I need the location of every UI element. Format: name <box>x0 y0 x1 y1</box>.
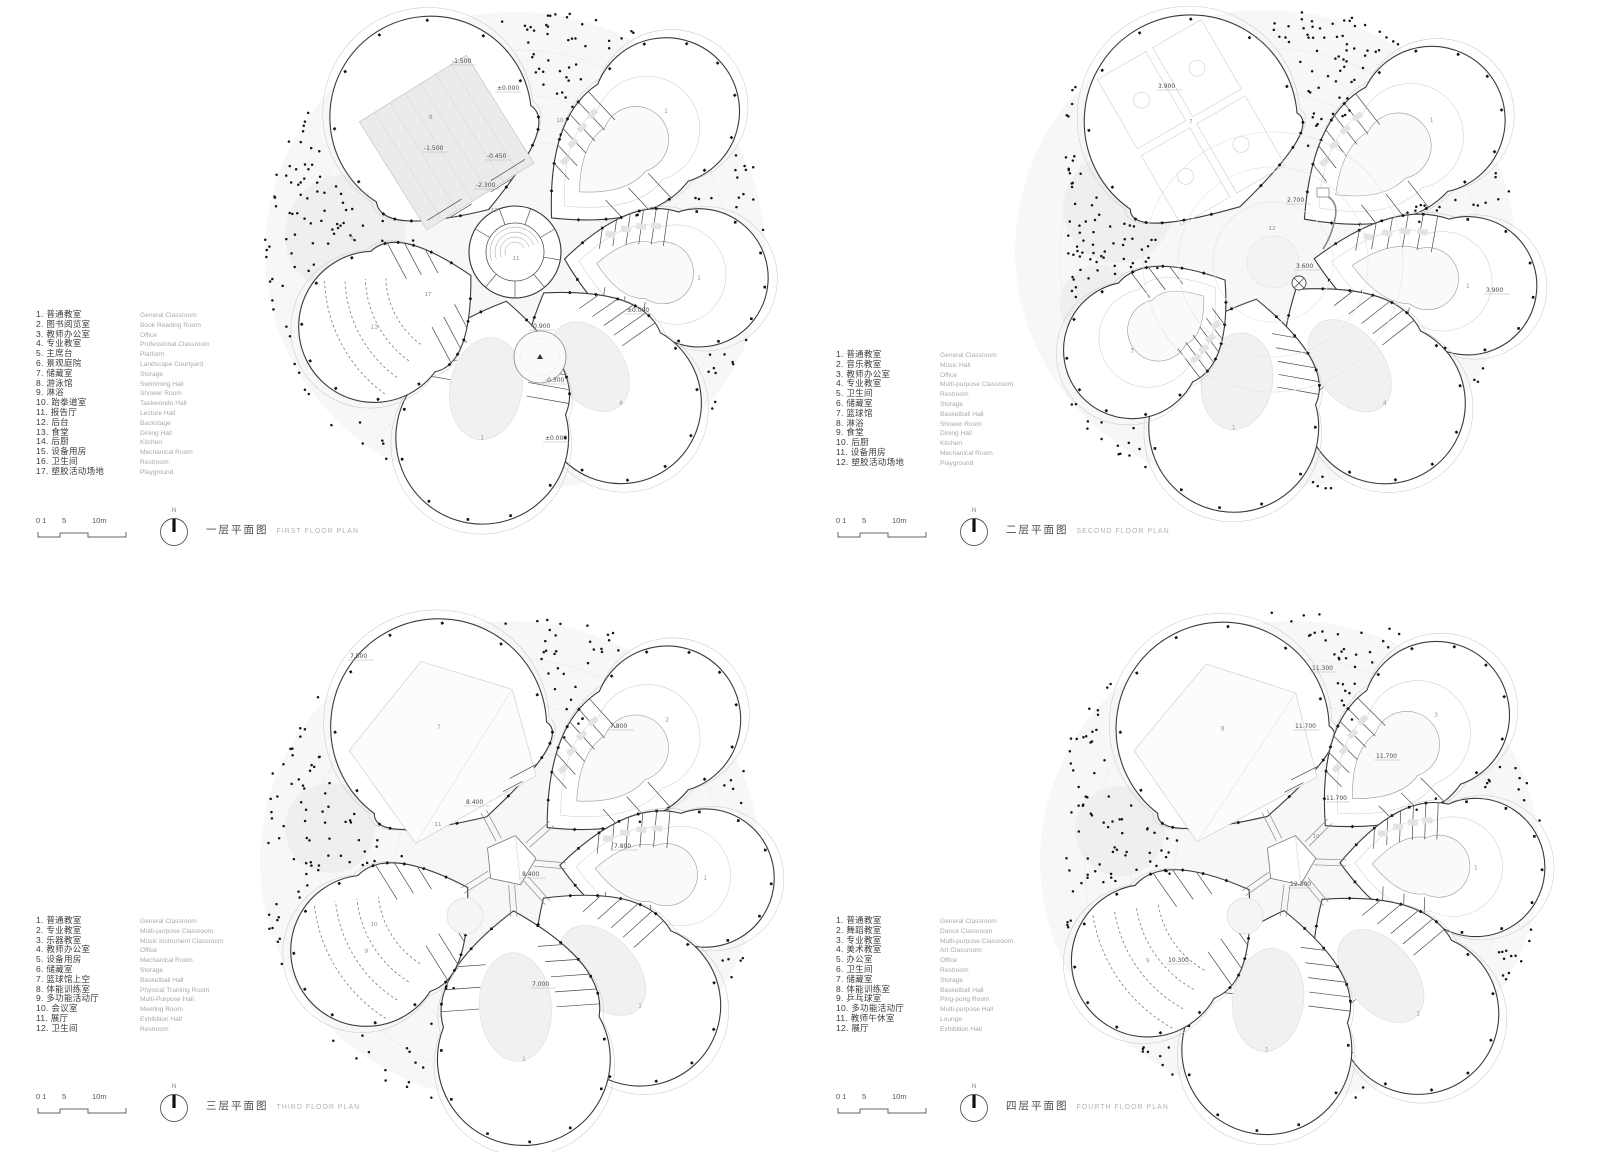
legend-item-en: Swimming Hall <box>140 380 184 390</box>
legend-item-en: Shower Room <box>140 389 182 399</box>
legend-item-zh: 12. 卫生间 <box>36 1024 140 1034</box>
svg-text:11.700: 11.700 <box>1295 723 1316 730</box>
scale-num: 0 1 <box>36 516 62 526</box>
footer-fourth-floor: 0 1 5 10m N 四层平面图 FOURTH FLOOR PLAN <box>836 1080 1169 1131</box>
legend-item: 7. 篮球馆Basketball Hall <box>836 409 1066 419</box>
legend-item-en: Multi-purpose Classroom <box>940 937 1013 947</box>
scale-numbers: 0 1 5 10m <box>36 1092 134 1102</box>
legend-item-en: Music Instrument Classroom <box>140 937 224 947</box>
legend-item-en: Dance Classroom <box>940 927 992 937</box>
legend-item-en: Mechanical Room <box>940 449 993 459</box>
svg-text:4: 4 <box>619 400 623 407</box>
legend-item: 12. 展厅Exhibition Hall <box>836 1024 1066 1034</box>
legend-item-en: Kitchen <box>940 439 962 449</box>
svg-text:4: 4 <box>1383 400 1387 407</box>
svg-text:8.400: 8.400 <box>522 871 539 878</box>
scale-numbers: 0 1 5 10m <box>36 516 134 526</box>
svg-text:1: 1 <box>703 875 707 882</box>
legend-item-en: General Classroom <box>140 917 197 927</box>
plan-title-en: THIRD FLOOR PLAN <box>277 1104 361 1111</box>
legend-item-en: Basketball Hall <box>940 986 984 996</box>
footer-third-floor: 0 1 5 10m N 三层平面图 THIRD FLOOR PLAN <box>36 1080 360 1131</box>
legend-item: 13. 食堂Dining Hall <box>36 428 266 438</box>
svg-text:N: N <box>972 506 977 514</box>
svg-text:1: 1 <box>480 435 484 442</box>
plan-title-en: FOURTH FLOOR PLAN <box>1077 1104 1169 1111</box>
legend-item-en: Multi-purpose Classroom <box>140 927 213 937</box>
legend-item-en: Mechanical Room <box>140 956 193 966</box>
svg-text:3: 3 <box>1434 712 1438 719</box>
legend-item: 11. 教师午休室Lounge <box>836 1014 1066 1024</box>
scale-bar: 0 1 5 10m <box>836 516 934 544</box>
legend-item-en: Multi-purpose Hall <box>940 1005 993 1015</box>
legend-first-floor: 1. 普通教室General Classroom2. 图书阅览室Book Rea… <box>36 310 266 477</box>
legend-item-en: Restroom <box>940 966 969 976</box>
legend-item-en: Platform <box>140 350 165 360</box>
svg-text:1: 1 <box>1265 1047 1269 1054</box>
legend-item-en: Lecture Hall <box>140 409 175 419</box>
north-arrow-icon: N <box>156 1080 192 1131</box>
plan-title-zh: 二层平面图 <box>1006 522 1069 537</box>
legend-item: 8. 淋浴Shower Room <box>836 419 1066 429</box>
legend-item-en: Mechanical Room <box>140 448 193 458</box>
svg-text:1: 1 <box>664 108 668 115</box>
svg-text:11.700: 11.700 <box>1376 753 1397 760</box>
legend-item-en: Dining Hall <box>140 429 172 439</box>
legend-item-en: Storage <box>940 400 963 410</box>
svg-text:11.300: 11.300 <box>1312 665 1333 672</box>
svg-text:8.400: 8.400 <box>466 799 483 806</box>
floor-plan-drawing-second: 3.9002.7003.6003.90012711413 <box>800 0 1600 576</box>
legend-item-zh: 12. 展厅 <box>836 1024 940 1034</box>
legend-item-en: General Classroom <box>940 351 997 361</box>
legend-item-en: Playground <box>940 459 973 469</box>
legend-item-en: Professional Classroom <box>140 340 210 350</box>
panel-fourth-floor: 11.30011.70011.70011.70012.30010.3001083… <box>800 576 1600 1152</box>
legend-item-en: Office <box>140 331 157 341</box>
svg-text:N: N <box>972 1082 977 1090</box>
floor-plan-drawing-fourth: 11.30011.70011.70011.70012.30010.3001083… <box>800 576 1600 1152</box>
legend-item: 10. 会议室Meeting Room <box>36 1004 266 1014</box>
svg-text:7: 7 <box>1189 118 1193 125</box>
legend-item: 12. 后台Backstage <box>36 418 266 428</box>
scale-num: 5 <box>62 516 92 526</box>
scale-num: 10m <box>92 1092 122 1102</box>
svg-text:-2.300: -2.300 <box>476 182 496 189</box>
svg-text:17: 17 <box>425 292 432 298</box>
svg-text:7.800: 7.800 <box>614 843 631 850</box>
legend-item-en: Office <box>940 371 957 381</box>
legend-item-en: Storage <box>140 370 163 380</box>
scale-num: 0 1 <box>36 1092 62 1102</box>
north-arrow-icon: N <box>156 504 192 555</box>
svg-text:1: 1 <box>1466 283 1470 290</box>
svg-text:12.300: 12.300 <box>1290 881 1311 888</box>
legend-item-en: Basketball Hall <box>940 410 984 420</box>
svg-text:11: 11 <box>435 822 442 828</box>
svg-text:1: 1 <box>1430 117 1434 124</box>
scale-num: 10m <box>892 516 922 526</box>
legend-item-en: Meeting Room <box>140 1005 183 1015</box>
svg-text:12: 12 <box>1269 226 1276 232</box>
scale-bar: 0 1 5 10m <box>36 516 134 544</box>
legend-item-en: Art Classroom <box>940 946 982 956</box>
legend-item: 12. 卫生间Restroom <box>36 1024 266 1034</box>
svg-text:10: 10 <box>557 118 564 124</box>
svg-text:3.900: 3.900 <box>1158 83 1175 90</box>
legend-item-en: General Classroom <box>140 311 197 321</box>
plan-title: 四层平面图 FOURTH FLOOR PLAN <box>1006 1098 1169 1113</box>
svg-text:-0.450: -0.450 <box>487 153 507 160</box>
svg-text:7.800: 7.800 <box>610 723 627 730</box>
legend-item: 9. 食堂Dining Hall <box>836 428 1066 438</box>
legend-item-zh: 17. 塑胶活动场地 <box>36 467 140 477</box>
legend-item: 12. 塑胶活动场地Playground <box>836 458 1066 468</box>
legend-item-en: Multi-purpose Classroom <box>940 380 1013 390</box>
legend-item-en: Physical Training Room <box>140 986 209 996</box>
panel-first-floor: -1.500±0.000-1.500-0.450-2.300±0.000-0.9… <box>0 0 800 576</box>
svg-text:N: N <box>172 506 177 514</box>
legend-item-en: Lounge <box>940 1015 962 1025</box>
svg-text:-0.300: -0.300 <box>545 377 565 384</box>
svg-text:1: 1 <box>1232 424 1236 431</box>
svg-text:12: 12 <box>491 208 498 214</box>
svg-text:1: 1 <box>1474 864 1478 871</box>
north-arrow-icon: N <box>956 504 992 555</box>
legend-item-en: Restroom <box>140 458 169 468</box>
legend-item-en: Backstage <box>140 419 171 429</box>
svg-text:1: 1 <box>697 275 701 282</box>
scale-num: 10m <box>92 516 122 526</box>
legend-item-en: Restroom <box>940 390 969 400</box>
legend-item-en: General Classroom <box>940 917 997 927</box>
legend-item: 8. 游泳馆Swimming Hall <box>36 379 266 389</box>
scale-num: 0 1 <box>836 1092 862 1102</box>
svg-text:7.000: 7.000 <box>532 981 549 988</box>
legend-item-en: Playground <box>140 468 173 478</box>
legend-item-en: Multi-Purpose Hall <box>140 995 194 1005</box>
svg-text:N: N <box>172 1082 177 1090</box>
svg-text:5: 5 <box>350 236 354 242</box>
svg-text:8: 8 <box>1221 726 1225 733</box>
svg-text:10: 10 <box>371 922 378 928</box>
svg-text:±0.000: ±0.000 <box>545 435 567 442</box>
svg-text:±0.000: ±0.000 <box>497 85 519 92</box>
svg-text:3: 3 <box>1130 347 1134 354</box>
svg-text:10: 10 <box>1313 834 1320 840</box>
scale-bar-steps <box>36 1105 132 1115</box>
svg-text:±0.000: ±0.000 <box>627 307 649 314</box>
north-arrow-icon: N <box>956 1080 992 1131</box>
scale-numbers: 0 1 5 10m <box>836 516 934 526</box>
floor-plan-drawing-first: -1.500±0.000-1.500-0.450-2.300±0.000-0.9… <box>0 0 800 576</box>
svg-text:8: 8 <box>429 114 433 121</box>
legend-item-en: Basketball Hall <box>140 976 184 986</box>
legend-item: 17. 塑胶活动场地Playground <box>36 467 266 477</box>
svg-text:13: 13 <box>370 324 378 331</box>
plan-title-zh: 一层平面图 <box>206 522 269 537</box>
svg-text:1: 1 <box>522 1056 526 1063</box>
scale-bar-steps <box>836 1105 932 1115</box>
legend-item-en: Exhibition Hall <box>140 1015 182 1025</box>
legend-item-en: Landscape Courtyard <box>140 360 203 370</box>
floor-plan-drawing-third: 7.5007.8008.4008.4007.8007.0001110721119 <box>0 576 800 1152</box>
scale-bar: 0 1 5 10m <box>36 1092 134 1120</box>
plan-title: 二层平面图 SECOND FLOOR PLAN <box>1006 522 1170 537</box>
legend-item-en: Kitchen <box>140 438 162 448</box>
svg-text:11.700: 11.700 <box>1326 795 1347 802</box>
scale-num: 5 <box>862 1092 892 1102</box>
scale-bar-steps <box>36 529 132 539</box>
legend-item-zh: 12. 塑胶活动场地 <box>836 458 940 468</box>
svg-text:7.500: 7.500 <box>350 653 367 660</box>
legend-item-en: Storage <box>140 966 163 976</box>
svg-text:7: 7 <box>437 724 441 731</box>
scale-bar: 0 1 5 10m <box>836 1092 934 1120</box>
legend-third-floor: 1. 普通教室General Classroom2. 专业教室Multi-pur… <box>36 916 266 1034</box>
svg-text:9: 9 <box>364 948 368 955</box>
panel-third-floor: 7.5007.8008.4008.4007.8007.0001110721119… <box>0 576 800 1152</box>
svg-text:-1.500: -1.500 <box>452 58 472 65</box>
panel-second-floor: 3.9002.7003.6003.90012711413 1. 普通教室Gene… <box>800 0 1600 576</box>
legend-item-en: Office <box>140 946 157 956</box>
legend-second-floor: 1. 普通教室General Classroom2. 音乐教室Music Hal… <box>836 350 1066 468</box>
legend-item-en: Ping-pong Room <box>940 995 989 1005</box>
svg-text:2: 2 <box>665 716 669 723</box>
legend-item-en: Dining Hall <box>940 429 972 439</box>
svg-text:-1.500: -1.500 <box>424 145 444 152</box>
plan-title-zh: 三层平面图 <box>206 1098 269 1113</box>
plan-title-en: SECOND FLOOR PLAN <box>1077 528 1170 535</box>
svg-text:1: 1 <box>638 1002 642 1009</box>
legend-item-en: Office <box>940 956 957 966</box>
legend-item-en: Shower Room <box>940 420 982 430</box>
svg-text:2.700: 2.700 <box>1287 197 1304 204</box>
svg-text:1: 1 <box>1416 1011 1420 1018</box>
legend-item-en: Exhibition Hall <box>940 1025 982 1035</box>
legend-fourth-floor: 1. 普通教室General Classroom2. 舞蹈教室Dance Cla… <box>836 916 1066 1034</box>
plan-title-en: FIRST FLOOR PLAN <box>277 528 359 535</box>
plan-title-zh: 四层平面图 <box>1006 1098 1069 1113</box>
legend-item-en: Restroom <box>140 1025 169 1035</box>
legend-item-en: Storage <box>940 976 963 986</box>
footer-first-floor: 0 1 5 10m N 一层平面图 FIRST FLOOR PLAN <box>36 504 359 555</box>
scale-num: 0 1 <box>836 516 862 526</box>
svg-text:-0.900: -0.900 <box>531 323 551 330</box>
legend-item-en: Music Hall <box>940 361 970 371</box>
svg-text:11: 11 <box>513 256 520 262</box>
svg-text:3.900: 3.900 <box>1486 287 1503 294</box>
svg-text:3.600: 3.600 <box>1296 263 1313 270</box>
plan-sheet: -1.500±0.000-1.500-0.450-2.300±0.000-0.9… <box>0 0 1600 1152</box>
scale-num: 5 <box>862 516 892 526</box>
legend-item-en: Book Reading Room <box>140 321 201 331</box>
scale-bar-steps <box>836 529 932 539</box>
legend-item: 11. 报告厅Lecture Hall <box>36 408 266 418</box>
scale-num: 5 <box>62 1092 92 1102</box>
scale-numbers: 0 1 5 10m <box>836 1092 934 1102</box>
svg-text:10.300: 10.300 <box>1168 957 1189 964</box>
scale-num: 10m <box>892 1092 922 1102</box>
legend-item-en: Taekwondo Hall <box>140 399 187 409</box>
plan-title: 一层平面图 FIRST FLOOR PLAN <box>206 522 359 537</box>
plan-title: 三层平面图 THIRD FLOOR PLAN <box>206 1098 360 1113</box>
drawing-sheet: { "panels": [ { "title_zh": "一层平面图", "ti… <box>0 0 1600 1152</box>
svg-text:9: 9 <box>1146 958 1150 965</box>
footer-second-floor: 0 1 5 10m N 二层平面图 SECOND FLOOR PLAN <box>836 504 1170 555</box>
